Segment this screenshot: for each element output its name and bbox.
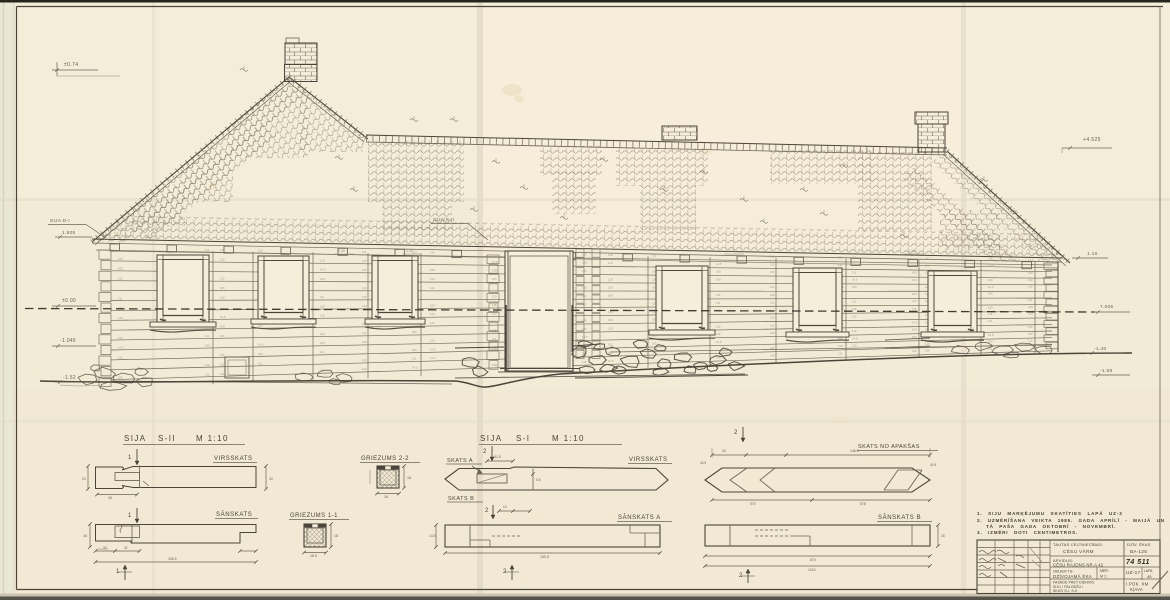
svg-text:40.5: 40.5 — [930, 463, 936, 467]
svg-text:14.5: 14.5 — [118, 346, 124, 350]
svg-text:S-I: S-I — [516, 434, 530, 443]
svg-text:110: 110 — [205, 372, 210, 376]
svg-text:870: 870 — [810, 558, 816, 562]
svg-text:KļAVA: KļAVA — [1130, 587, 1143, 592]
svg-text:GRIEZUMS 2-2: GRIEZUMS 2-2 — [361, 456, 409, 462]
svg-text:110: 110 — [220, 248, 225, 252]
svg-text:120: 120 — [362, 367, 367, 371]
svg-text:SIJA S-II: SIJA S-II — [433, 217, 454, 223]
svg-text:-1.52: -1.52 — [63, 375, 76, 381]
svg-text:5.5: 5.5 — [536, 478, 541, 482]
svg-text:VIRSSKATS: VIRSSKATS — [629, 457, 668, 463]
svg-text:TĀ PAŠA GADA OKTOBRĪ - NOVEMBR: TĀ PAŠA GADA OKTOBRĪ - NOVEMBRĪ. — [986, 522, 1116, 529]
svg-text:40.5: 40.5 — [700, 461, 706, 465]
svg-text:111: 111 — [838, 256, 843, 260]
svg-text:14.5: 14.5 — [988, 333, 994, 337]
svg-text:110: 110 — [1028, 278, 1033, 282]
svg-text:111: 111 — [770, 346, 775, 350]
svg-text:578: 578 — [860, 502, 866, 506]
svg-text:115: 115 — [118, 316, 123, 320]
svg-text:M 1:: M 1: — [1100, 575, 1107, 579]
svg-text:14.5: 14.5 — [912, 321, 918, 325]
svg-text:111: 111 — [988, 312, 993, 316]
svg-text:108: 108 — [492, 269, 497, 273]
svg-text:SKATI S-I, S-II: SKATI S-I, S-II — [1053, 589, 1077, 593]
svg-text:108: 108 — [770, 331, 775, 335]
svg-text:105: 105 — [608, 343, 613, 347]
svg-text:108: 108 — [716, 278, 721, 282]
svg-text:111: 111 — [912, 306, 917, 310]
svg-text:111: 111 — [118, 296, 123, 300]
svg-text:110: 110 — [582, 294, 587, 298]
svg-text:18: 18 — [334, 534, 338, 538]
svg-text:30: 30 — [103, 546, 107, 550]
svg-text:-1.045: -1.045 — [60, 338, 76, 344]
svg-text:105: 105 — [412, 330, 417, 334]
svg-text:115: 115 — [362, 295, 367, 299]
svg-text:111: 111 — [412, 357, 417, 361]
svg-text:108: 108 — [608, 294, 613, 298]
svg-text:111: 111 — [838, 352, 843, 356]
svg-text:111: 111 — [925, 264, 930, 268]
svg-text:120: 120 — [320, 277, 325, 281]
svg-text:115: 115 — [608, 326, 613, 330]
svg-text:108: 108 — [1028, 305, 1033, 309]
svg-text:16: 16 — [83, 534, 87, 538]
svg-text:111: 111 — [852, 256, 857, 260]
svg-text:14.5: 14.5 — [412, 366, 418, 370]
svg-text:1.10: 1.10 — [728, 249, 735, 253]
svg-text:110: 110 — [205, 363, 210, 367]
svg-text:111: 111 — [852, 300, 857, 304]
svg-text:110: 110 — [258, 249, 263, 253]
svg-text:34: 34 — [722, 449, 726, 453]
svg-text:110: 110 — [608, 261, 613, 265]
svg-text:18: 18 — [384, 495, 388, 499]
svg-text:SKATS B: SKATS B — [448, 496, 474, 502]
svg-text:120: 120 — [925, 342, 930, 346]
svg-text:110: 110 — [912, 299, 917, 303]
svg-text:108: 108 — [852, 285, 857, 289]
svg-text:SIJA: SIJA — [480, 434, 503, 443]
svg-text:105: 105 — [912, 271, 917, 275]
svg-text:111: 111 — [652, 253, 657, 257]
svg-text:1.10: 1.10 — [406, 249, 413, 253]
svg-text:111: 111 — [770, 285, 775, 289]
svg-text:14.5: 14.5 — [716, 262, 722, 266]
svg-text:18: 18 — [407, 476, 411, 480]
svg-text:111: 111 — [220, 372, 225, 376]
svg-text:40: 40 — [108, 496, 112, 500]
svg-text:1.10: 1.10 — [338, 249, 345, 253]
svg-text:108: 108 — [716, 270, 721, 274]
svg-text:111: 111 — [320, 295, 325, 299]
svg-text:10: 10 — [503, 505, 507, 509]
svg-text:115: 115 — [362, 259, 367, 263]
svg-text:BA-125: BA-125 — [1130, 549, 1147, 554]
svg-text:45: 45 — [1147, 574, 1152, 579]
svg-text:120: 120 — [582, 327, 587, 331]
svg-text:115: 115 — [220, 277, 225, 281]
svg-text:111: 111 — [770, 300, 775, 304]
svg-text:M 1:10: M 1:10 — [552, 434, 585, 443]
svg-text:±0.00: ±0.00 — [62, 298, 76, 304]
svg-text:14.5: 14.5 — [988, 264, 994, 268]
svg-text:108: 108 — [770, 354, 775, 358]
svg-text:120: 120 — [430, 303, 435, 307]
svg-text:110: 110 — [220, 258, 225, 262]
svg-text:108: 108 — [988, 278, 993, 282]
svg-text:CĒSU RAJONS NR.A 42: CĒSU RAJONS NR.A 42 — [1053, 563, 1104, 568]
svg-text:120: 120 — [362, 304, 367, 308]
svg-text:105: 105 — [220, 334, 225, 338]
svg-text:110: 110 — [852, 329, 857, 333]
svg-text:-1.58: -1.58 — [1100, 368, 1112, 374]
svg-text:111: 111 — [362, 331, 367, 335]
svg-text:120: 120 — [838, 344, 843, 348]
svg-text:14.5: 14.5 — [1028, 258, 1034, 262]
svg-text:TAUTAS CELTNIECĪBAS:: TAUTAS CELTNIECĪBAS: — [1053, 542, 1103, 547]
svg-text:105: 105 — [320, 332, 325, 336]
svg-text:110: 110 — [988, 257, 993, 261]
svg-text:-1.40: -1.40 — [1094, 346, 1106, 352]
svg-text:1210: 1210 — [808, 568, 816, 572]
svg-text:41.5: 41.5 — [494, 455, 501, 459]
svg-text:MĒR.: MĒR. — [1100, 569, 1109, 573]
svg-text:111: 111 — [770, 323, 775, 327]
svg-text:111: 111 — [320, 350, 325, 354]
svg-text:150.5: 150.5 — [540, 555, 549, 559]
svg-text:14.5: 14.5 — [220, 315, 226, 319]
svg-text:110: 110 — [582, 269, 587, 273]
svg-text:108: 108 — [925, 349, 930, 353]
svg-text:14.5: 14.5 — [925, 257, 931, 261]
svg-text:120: 120 — [608, 318, 613, 322]
svg-text:108: 108 — [492, 363, 497, 367]
svg-text:108: 108 — [220, 324, 225, 328]
svg-text:115: 115 — [770, 270, 775, 274]
svg-text:111: 111 — [988, 319, 993, 323]
svg-text:I.POK. KM: I.POK. KM — [1126, 582, 1149, 587]
svg-text:110: 110 — [608, 277, 613, 281]
svg-text:120: 120 — [608, 286, 613, 290]
svg-text:14.5: 14.5 — [988, 285, 994, 289]
svg-text:16: 16 — [941, 534, 945, 538]
svg-text:111: 111 — [205, 334, 210, 338]
svg-text:120: 120 — [362, 340, 367, 344]
svg-text:111: 111 — [852, 270, 857, 274]
svg-text:105: 105 — [220, 286, 225, 290]
svg-text:105: 105 — [912, 292, 917, 296]
svg-text:1. SIJU MARĶĒJUMU SKATĪTIES L: 1. SIJU MARĶĒJUMU SKATĪTIES LAPĀ UZ-3 — [977, 510, 1123, 516]
svg-text:115: 115 — [1028, 285, 1033, 289]
svg-text:115: 115 — [1028, 325, 1033, 329]
svg-text:120: 120 — [912, 278, 917, 282]
svg-text:110: 110 — [320, 259, 325, 263]
svg-text:2. UZMĒRĪŠANA VEIKTA 1985. GAD: 2. UZMĒRĪŠANA VEIKTA 1985. GADA APRĪLĪ -… — [977, 516, 1165, 523]
svg-text:115: 115 — [852, 307, 857, 311]
svg-text:OBJEKTS:: OBJEKTS: — [1053, 569, 1074, 574]
svg-text:120: 120 — [912, 349, 917, 353]
svg-text:CĒSU VĀRM: CĒSU VĀRM — [1063, 548, 1094, 554]
svg-text:110: 110 — [220, 296, 225, 300]
svg-text:22: 22 — [82, 477, 86, 481]
svg-text:18.5: 18.5 — [310, 554, 317, 558]
svg-text:DZĪVOJAMĀ ĒKA: DZĪVOJAMĀ ĒKA — [1053, 574, 1092, 579]
svg-text:110: 110 — [716, 332, 721, 336]
svg-text:120: 120 — [770, 316, 775, 320]
svg-text:SKATS NO APAKŠAS: SKATS NO APAKŠAS — [858, 443, 920, 450]
svg-text:110: 110 — [770, 255, 775, 259]
svg-text:105: 105 — [118, 375, 123, 379]
svg-text:108: 108 — [1028, 332, 1033, 336]
svg-text:115: 115 — [852, 314, 857, 318]
svg-text:32: 32 — [269, 477, 273, 481]
svg-text:105: 105 — [988, 292, 993, 296]
svg-text:570: 570 — [750, 502, 756, 506]
svg-text:105: 105 — [492, 277, 497, 281]
svg-text:115: 115 — [320, 304, 325, 308]
svg-text:110: 110 — [492, 346, 497, 350]
svg-text:115: 115 — [608, 253, 613, 257]
svg-text:115: 115 — [430, 339, 435, 343]
svg-text:115: 115 — [770, 262, 775, 266]
svg-text:S-II: S-II — [158, 434, 176, 443]
svg-text:111: 111 — [1028, 298, 1033, 302]
svg-text:105: 105 — [492, 311, 497, 315]
svg-text:115: 115 — [118, 336, 123, 340]
svg-text:14.5: 14.5 — [430, 356, 436, 360]
svg-text:105: 105 — [118, 257, 123, 261]
svg-text:110: 110 — [430, 277, 435, 281]
svg-text:111: 111 — [118, 306, 123, 310]
svg-text:1.605: 1.605 — [62, 230, 76, 236]
svg-text:GRIEZUMS 1-1: GRIEZUMS 1-1 — [290, 513, 338, 519]
svg-text:120: 120 — [362, 268, 367, 272]
svg-text:115: 115 — [430, 251, 435, 255]
svg-text:146.5: 146.5 — [850, 449, 859, 453]
svg-text:M 1:10: M 1:10 — [196, 434, 229, 443]
svg-text:105: 105 — [412, 348, 417, 352]
svg-text:115: 115 — [1028, 339, 1033, 343]
svg-text:105: 105 — [320, 341, 325, 345]
svg-text:105: 105 — [430, 312, 435, 316]
svg-text:14.5: 14.5 — [429, 534, 436, 538]
svg-text:110: 110 — [362, 286, 367, 290]
svg-text:14.5: 14.5 — [716, 340, 722, 344]
svg-text:110: 110 — [430, 321, 435, 325]
svg-text:110: 110 — [362, 358, 367, 362]
svg-text:111: 111 — [362, 250, 367, 254]
svg-text:105: 105 — [118, 267, 123, 271]
svg-text:108: 108 — [258, 352, 263, 356]
svg-text:SIJA D-I: SIJA D-I — [50, 218, 70, 224]
svg-text:115: 115 — [582, 360, 587, 364]
svg-text:108: 108 — [582, 319, 587, 323]
svg-text:111: 111 — [838, 263, 843, 267]
svg-text:14.5: 14.5 — [852, 336, 858, 340]
svg-text:1.10: 1.10 — [1087, 251, 1098, 257]
svg-text:14.5: 14.5 — [320, 268, 326, 272]
svg-text:115: 115 — [716, 293, 721, 297]
svg-text:345.5: 345.5 — [168, 557, 177, 561]
svg-text:7.005: 7.005 — [1100, 304, 1114, 310]
svg-text:DZĪV. ĒKAS: DZĪV. ĒKAS — [1127, 542, 1151, 547]
svg-text:14.5: 14.5 — [258, 343, 264, 347]
svg-text:UZ-17: UZ-17 — [1126, 570, 1140, 576]
svg-text:115: 115 — [320, 314, 325, 318]
svg-text:1.10: 1.10 — [908, 249, 915, 253]
svg-text:LAPA: LAPA — [1144, 569, 1153, 573]
svg-text:14.5: 14.5 — [608, 359, 614, 363]
svg-text:110: 110 — [430, 286, 435, 290]
svg-text:120: 120 — [1028, 271, 1033, 275]
svg-text:111: 111 — [118, 356, 123, 360]
svg-text:14.5: 14.5 — [852, 278, 858, 282]
svg-text:115: 115 — [118, 277, 123, 281]
svg-text:14.5: 14.5 — [430, 347, 436, 351]
svg-text:111: 111 — [258, 361, 263, 365]
svg-text:SKATS A: SKATS A — [447, 458, 473, 464]
svg-text:SĀNSKATS B: SĀNSKATS B — [878, 514, 921, 521]
svg-text:120: 120 — [988, 305, 993, 309]
svg-text:108: 108 — [430, 268, 435, 272]
svg-text:111: 111 — [220, 362, 225, 366]
svg-text:3. IZMĒRI DOTI CENTIMETROS.: 3. IZMĒRI DOTI CENTIMETROS. — [977, 529, 1078, 535]
svg-text:SĀNSKATS A: SĀNSKATS A — [618, 514, 661, 521]
svg-text:±0.74: ±0.74 — [64, 62, 78, 68]
svg-text:SIJA: SIJA — [124, 434, 147, 443]
svg-text:115: 115 — [220, 353, 225, 357]
svg-text:105: 105 — [205, 344, 210, 348]
svg-text:108: 108 — [770, 293, 775, 297]
svg-text:111: 111 — [912, 264, 917, 268]
svg-text:115: 115 — [716, 324, 721, 328]
svg-text:111: 111 — [716, 301, 721, 305]
svg-text:115: 115 — [492, 303, 497, 307]
svg-text:VIRSSKATS: VIRSSKATS — [214, 456, 253, 462]
svg-text:32: 32 — [124, 546, 128, 550]
svg-text:+4.525: +4.525 — [1083, 137, 1101, 143]
svg-text:115: 115 — [582, 253, 587, 257]
svg-text:SĀNSKATS: SĀNSKATS — [216, 511, 252, 518]
svg-text:120: 120 — [492, 294, 497, 298]
svg-text:111: 111 — [205, 248, 210, 252]
svg-text:14.5: 14.5 — [582, 261, 588, 265]
svg-text:74 511: 74 511 — [1126, 559, 1150, 566]
svg-text:108: 108 — [912, 328, 917, 332]
svg-text:110: 110 — [852, 344, 857, 348]
svg-text:105: 105 — [652, 342, 657, 346]
svg-text:14.5: 14.5 — [582, 335, 588, 339]
